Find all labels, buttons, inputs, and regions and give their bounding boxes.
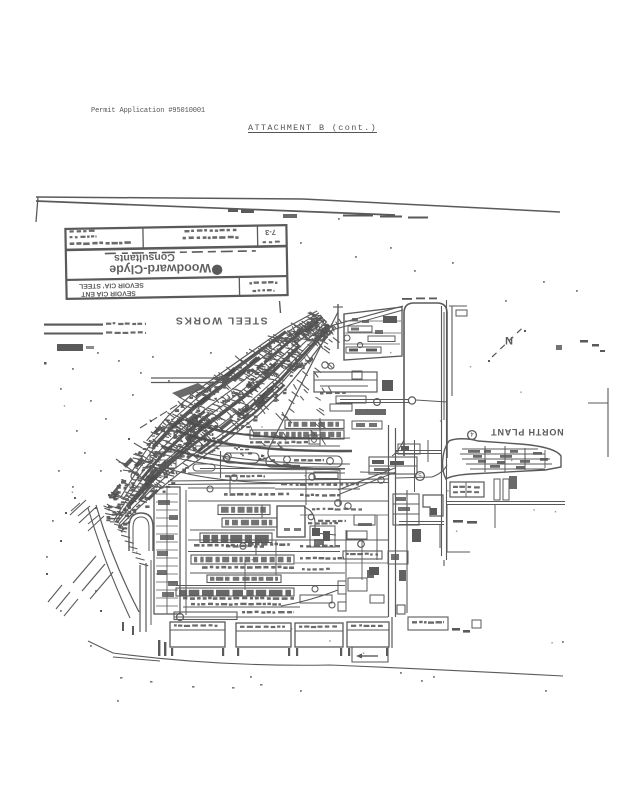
svg-text:N: N (505, 334, 513, 346)
svg-text:ATTACHMENT B (cont.): ATTACHMENT B (cont.) (248, 123, 377, 133)
svg-text:Permit Application #95010001: Permit Application #95010001 (91, 107, 205, 115)
svg-text:Woodward-Clyde: Woodward-Clyde (109, 261, 211, 277)
svg-text:STEEL WORKS: STEEL WORKS (174, 315, 267, 327)
svg-text:SEVOIR CIA ENT: SEVOIR CIA ENT (80, 289, 135, 297)
svg-text:7-3: 7-3 (265, 228, 276, 237)
svg-text:NORTH PLANT: NORTH PLANT (490, 427, 563, 437)
svg-text:SEVOIR CIA' STEEL: SEVOIR CIA' STEEL (79, 281, 144, 289)
